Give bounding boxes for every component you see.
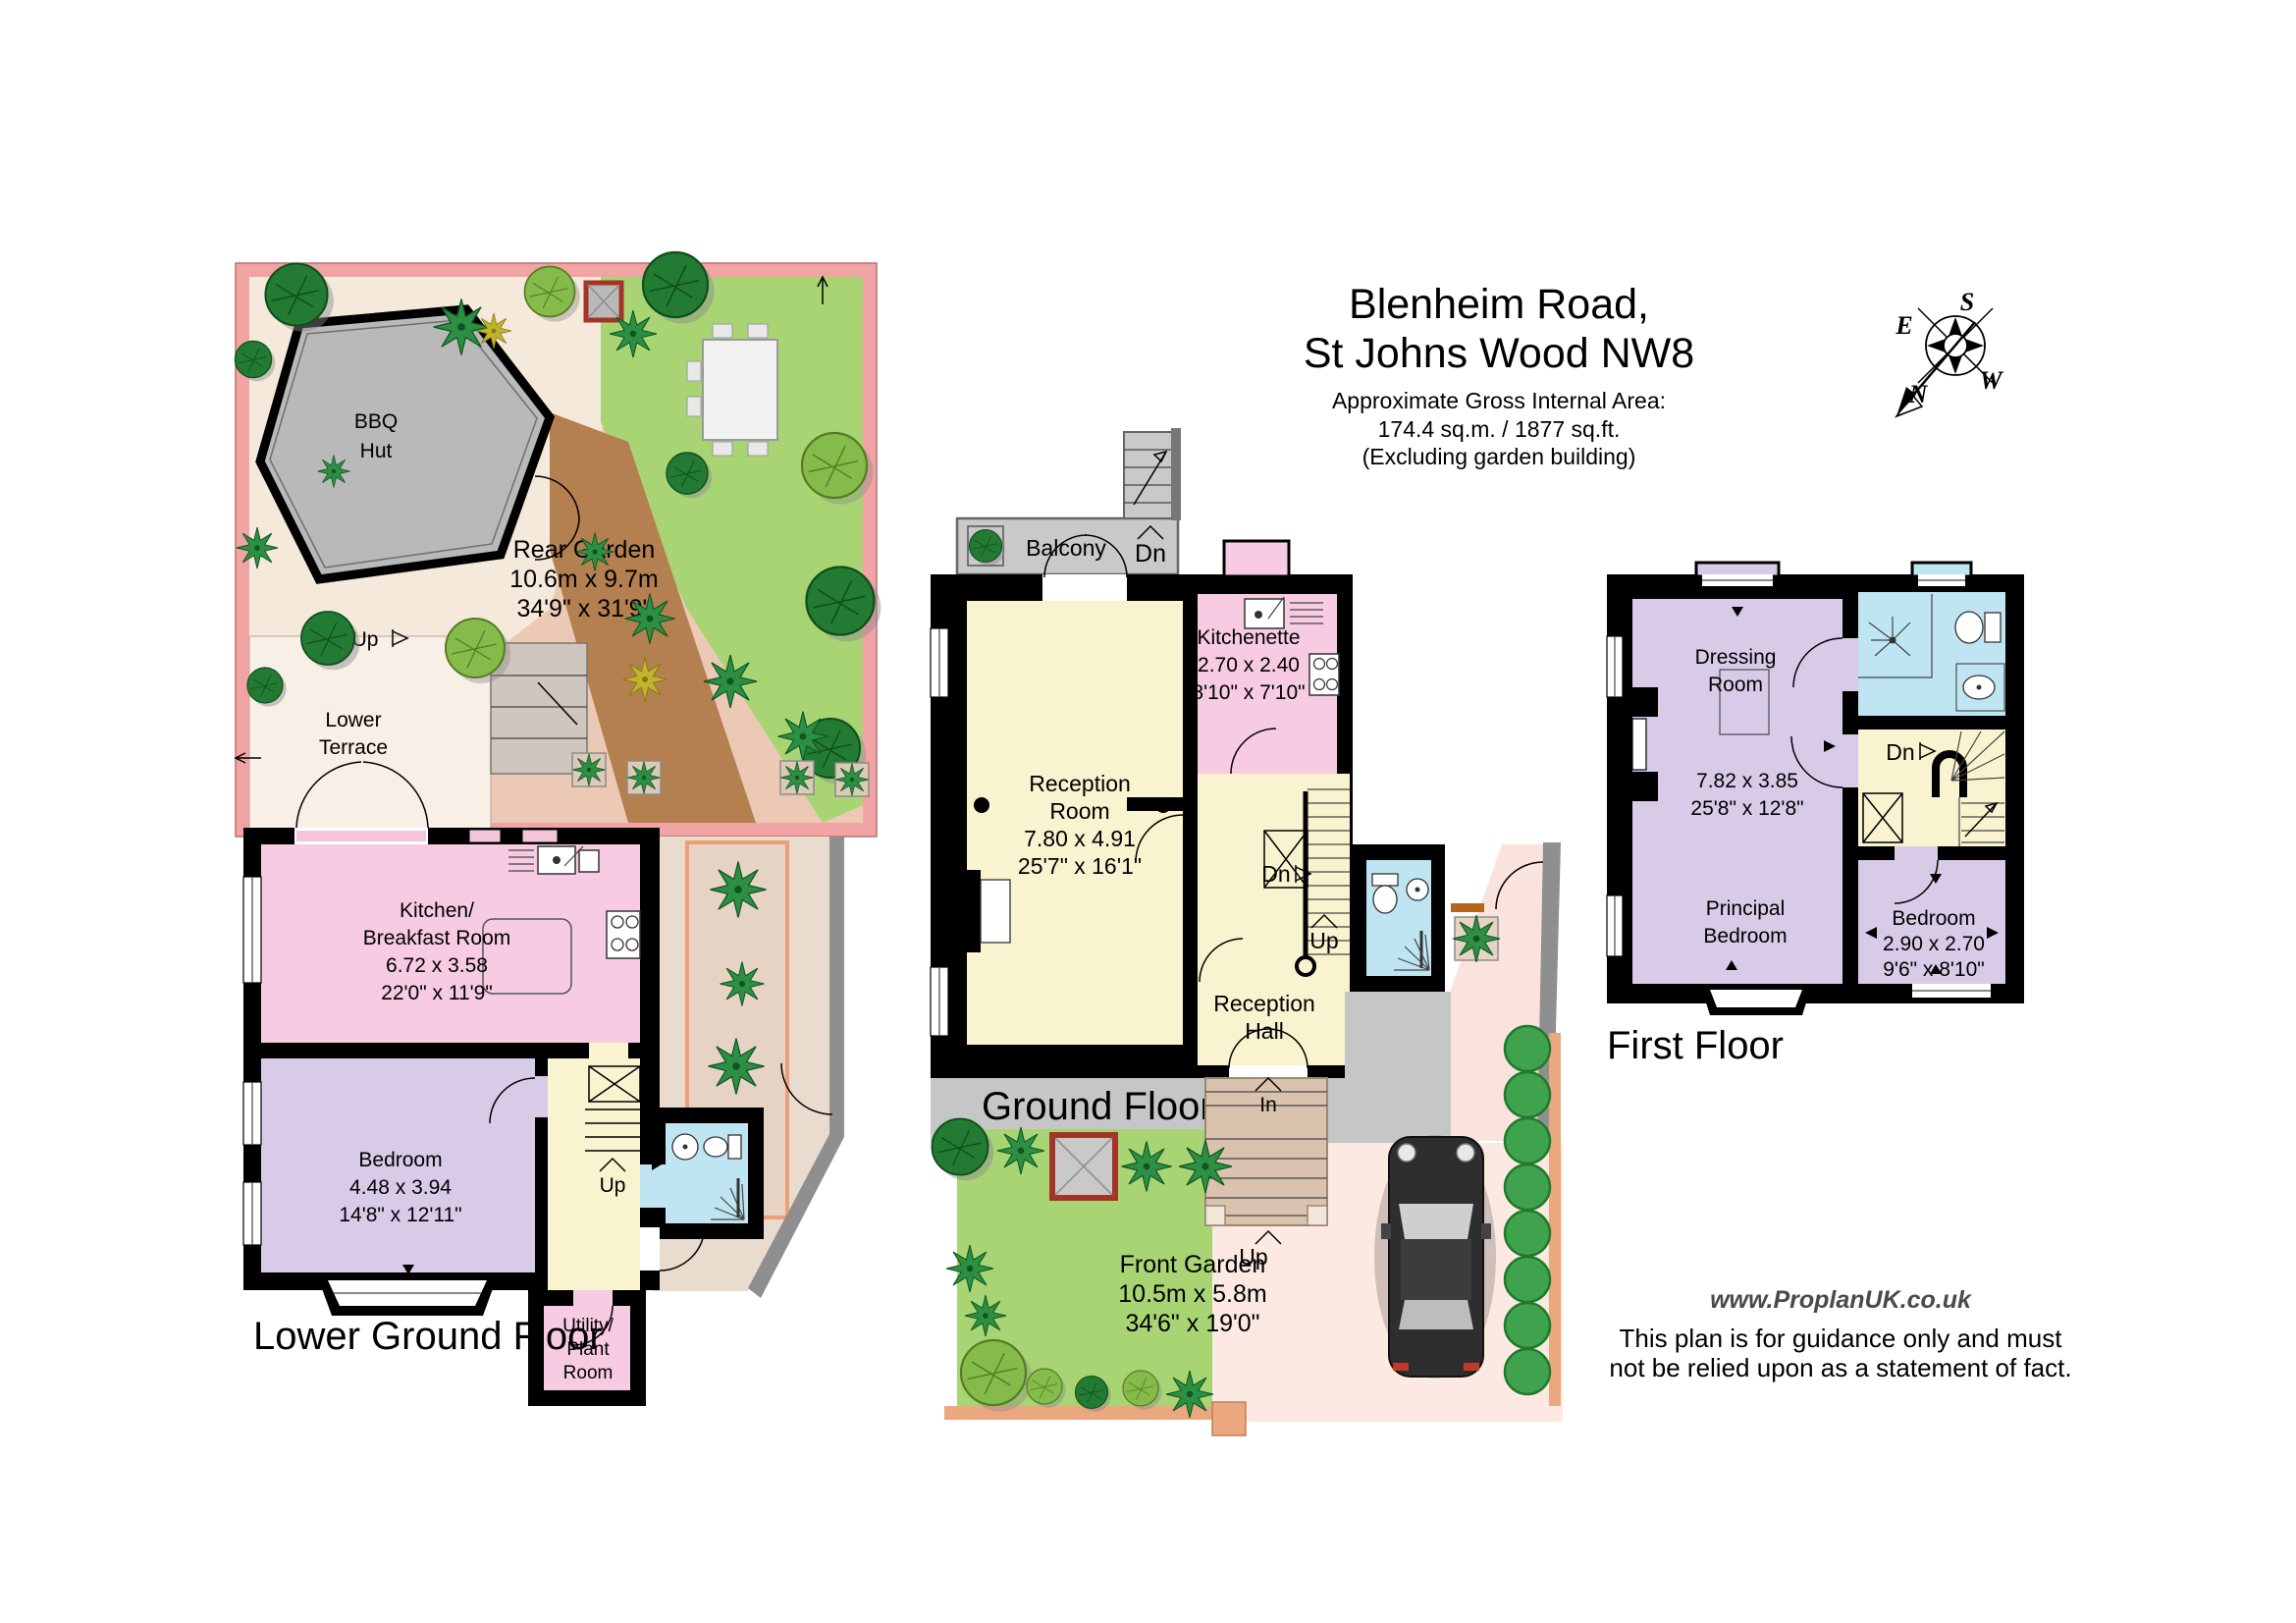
lower-ground-floor-plan: BBQ Hut Rear Garden 10.6m x 9.7m 34'9" x…: [235, 252, 881, 1406]
lg-bedroom-dim-m: 4.48 x 3.94: [349, 1176, 452, 1199]
first-floor-plan: Dn Dressing Room 7.82 x 3.85 25'8" x 12'…: [1607, 563, 2024, 1067]
website-url: www.ProplanUK.co.uk: [1710, 1286, 1972, 1314]
front-garden-dim-ft: 34'6" x 19'0": [1125, 1310, 1259, 1337]
ground-floor-label: Ground Floor: [982, 1085, 1213, 1128]
garden-planter-box: [586, 283, 621, 320]
footer: www.ProplanUK.co.uk This plan is for gui…: [1609, 1286, 2071, 1382]
dressing-room-label: Dressing: [1695, 646, 1777, 669]
rear-garden: BBQ Hut Rear Garden 10.6m x 9.7m 34'9" x…: [235, 252, 881, 837]
lg-stairs-up-label: Up: [600, 1174, 626, 1197]
reception-room-label: Reception: [1029, 771, 1131, 796]
front-planter-box: [1052, 1135, 1115, 1198]
reception-hall-label: Hall: [1245, 1018, 1284, 1044]
utility-label: Utility/: [562, 1316, 614, 1336]
compass-n: N: [1908, 380, 1929, 408]
rear-garden-dim-m: 10.6m x 9.7m: [509, 566, 658, 593]
compass-e: E: [1895, 311, 1912, 340]
ground-floor-plan: Balcony Dn: [931, 428, 1563, 1435]
lg-hall: [548, 1058, 640, 1290]
disclaimer-line1: This plan is for guidance only and must: [1620, 1324, 2063, 1353]
lower-ground-floor-label: Lower Ground Floor: [253, 1315, 603, 1358]
area-value: 174.4 sq.m. / 1877 sq.ft.: [1378, 416, 1621, 442]
reception-room-dim-ft: 25'7" x 16'1": [1018, 853, 1142, 879]
bbq-hut-label: BBQ: [354, 410, 398, 433]
kitchenette-dim-ft: 8'10" x 7'10": [1192, 681, 1305, 704]
reception-hall-label: Reception: [1213, 991, 1315, 1016]
ff-stairs-dn-label: Dn: [1886, 739, 1914, 765]
lower-terrace-label: Terrace: [319, 736, 388, 759]
area-note: (Excluding garden building): [1362, 444, 1636, 469]
kitchen-dim-ft: 22'0" x 11'9": [381, 982, 493, 1004]
suite-dim-m: 7.82 x 3.85: [1696, 770, 1798, 792]
lg-bedroom-label: Bedroom: [358, 1149, 442, 1171]
dressing-room-label: Room: [1708, 674, 1763, 696]
walkway-fence: [829, 837, 844, 1137]
front-garden-label: Front Garden: [1120, 1251, 1266, 1278]
principal-bedroom-label: Principal: [1706, 897, 1786, 920]
principal-bedroom-label: Bedroom: [1703, 925, 1787, 947]
area-label: Approximate Gross Internal Area:: [1332, 388, 1666, 413]
front-garden-dim-m: 10.5m x 5.8m: [1118, 1280, 1266, 1308]
gf-stairs-dn-label: Dn: [1261, 861, 1290, 887]
utility-label: Room: [563, 1363, 614, 1383]
kitchenette-stove-icon: [1309, 654, 1339, 695]
ff-bedroom-label: Bedroom: [1892, 907, 1975, 930]
reception-room-label: Room: [1049, 798, 1109, 824]
compass-s: S: [1960, 288, 1974, 316]
kitchenette-label: Kitchenette: [1197, 626, 1300, 649]
balcony: Balcony Dn: [957, 428, 1181, 574]
first-floor-label: First Floor: [1607, 1024, 1784, 1067]
kitchenette-dim-m: 2.70 x 2.40: [1198, 654, 1300, 676]
floorplan-page: BBQ Hut Rear Garden 10.6m x 9.7m 34'9" x…: [0, 0, 2296, 1623]
gf-stairs-up-label: Up: [1309, 928, 1338, 953]
lg-bedroom-dim-ft: 14'8" x 12'11": [339, 1204, 461, 1226]
stove-icon: [607, 911, 640, 958]
balcony-label: Balcony: [1026, 535, 1106, 561]
kitchen-label: Kitchen/: [400, 899, 474, 922]
property-title-line2: St Johns Wood NW8: [1304, 330, 1694, 377]
disclaimer-line2: not be relied upon as a statement of fac…: [1609, 1353, 2071, 1382]
reception-room-dim-m: 7.80 x 4.91: [1024, 826, 1136, 851]
floorplan-canvas: BBQ Hut Rear Garden 10.6m x 9.7m 34'9" x…: [0, 0, 2296, 1623]
kitchen-label: Breakfast Room: [363, 927, 511, 949]
compass-w: W: [1979, 366, 2003, 395]
lower-terrace-label: Lower: [325, 709, 381, 731]
utility-label: Plant: [566, 1339, 610, 1360]
car: [1374, 1135, 1496, 1379]
title-block: Blenheim Road, St Johns Wood NW8 Approxi…: [1304, 281, 1694, 469]
entrance-in-label: In: [1259, 1094, 1277, 1116]
property-title-line1: Blenheim Road,: [1349, 281, 1649, 328]
ff-bedroom-dim-m: 2.90 x 2.70: [1883, 933, 1985, 955]
suite-dim-ft: 25'8" x 12'8": [1690, 797, 1803, 820]
bbq-hut-label: Hut: [360, 440, 393, 462]
compass-rose-icon: S E W N: [1895, 288, 2003, 416]
balcony-dn-label: Dn: [1135, 540, 1166, 568]
ff-bedroom-dim-ft: 9'6" x 8'10": [1883, 958, 1985, 981]
kitchen-dim-m: 6.72 x 3.58: [386, 954, 488, 977]
